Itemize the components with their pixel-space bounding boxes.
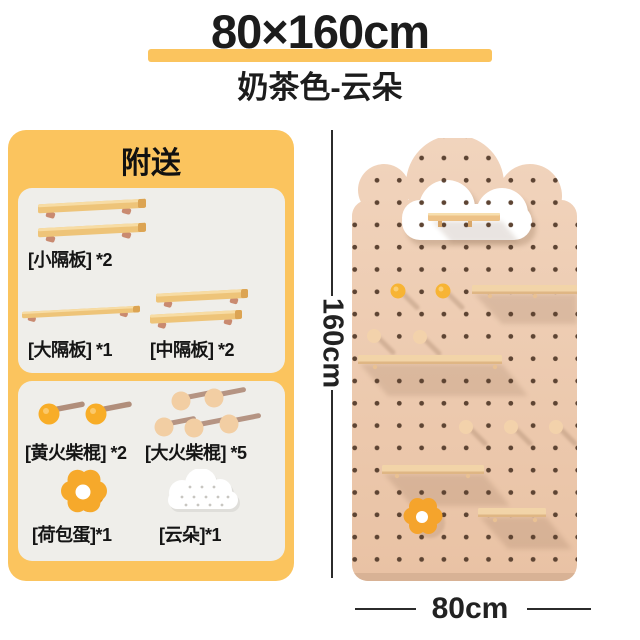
width-dimension-label: 80cm xyxy=(405,592,535,626)
large-matchstick-icon xyxy=(144,386,282,444)
yellow-matchstick-icon xyxy=(24,395,144,437)
yellow-matchstick-label: [黄火柴棍] *2 xyxy=(25,439,127,465)
gift-panel: 附送 [小隔板] *2 xyxy=(8,130,294,581)
product-variant-title: 奶茶色-云朵 xyxy=(0,62,640,107)
small-shelf-label: [小隔板] *2 xyxy=(28,246,112,272)
pegboard-graphic xyxy=(352,138,577,581)
medium-shelf-icon xyxy=(142,288,254,338)
board-bottom-edge xyxy=(352,573,577,581)
height-dimension-line-bottom xyxy=(331,390,333,578)
large-shelf-label: [大隔板] *1 xyxy=(28,336,112,362)
large-shelf-icon xyxy=(20,304,144,328)
gift-panel-title: 附送 xyxy=(8,138,294,182)
height-dimension-line-top xyxy=(331,130,333,296)
product-size-title: 80×160cm xyxy=(0,4,640,59)
height-dimension-label: 160cm xyxy=(316,298,349,388)
gift-card-pegs: [黄火柴棍] *2 [大火柴棍] *5 xyxy=(18,381,285,561)
cloud-icon xyxy=(156,469,250,515)
medium-shelf-label: [中隔板] *2 xyxy=(150,336,234,362)
small-shelf-icon xyxy=(26,198,156,248)
fried-egg-label: [荷包蛋]*1 xyxy=(32,521,112,547)
product-infographic: 80×160cm 奶茶色-云朵 附送 xyxy=(0,0,640,640)
fried-egg-icon xyxy=(58,465,110,517)
gift-card-shelves: [小隔板] *2 [大隔板] *1 xyxy=(18,188,285,373)
large-matchstick-label: [大火柴棍] *5 xyxy=(145,439,247,465)
width-dimension-line-right xyxy=(527,608,591,610)
cloud-label: [云朵]*1 xyxy=(159,521,221,547)
